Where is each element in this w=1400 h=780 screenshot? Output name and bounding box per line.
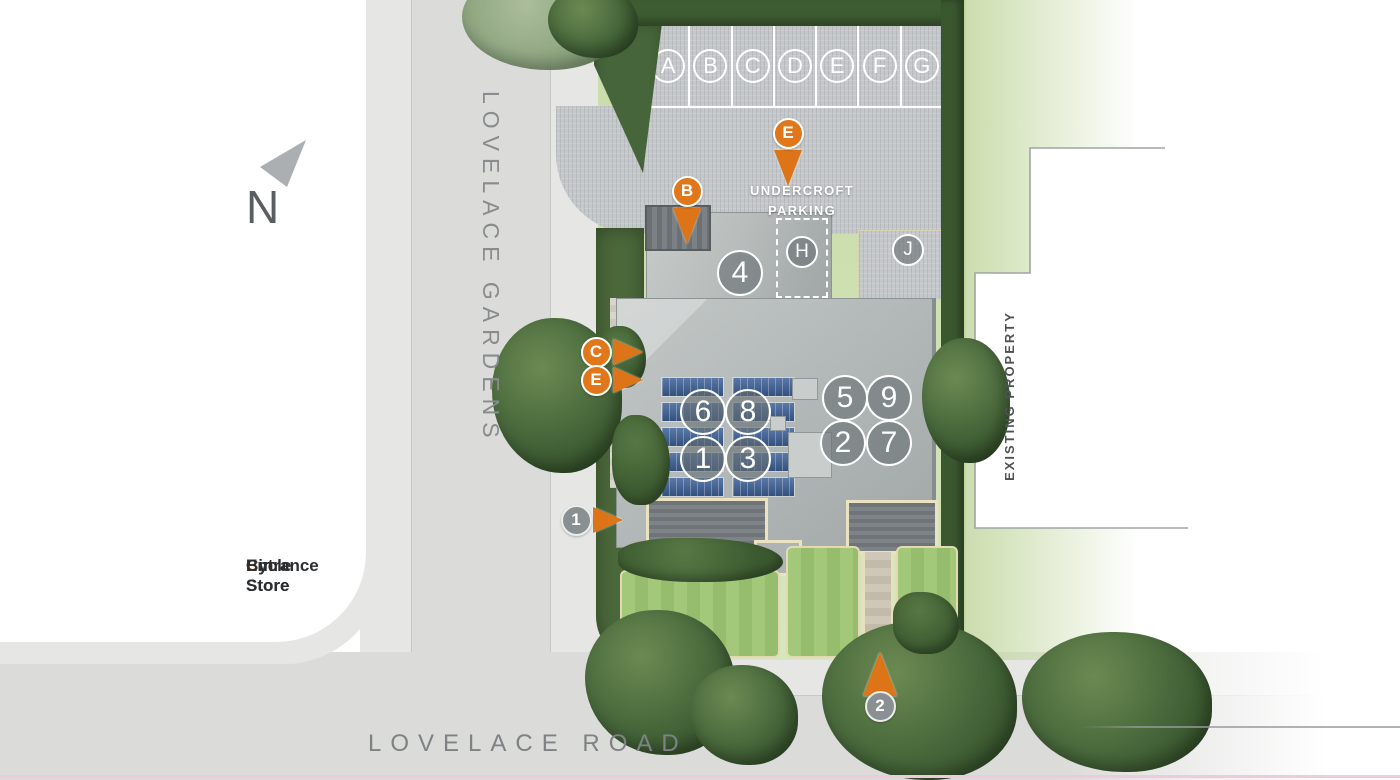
boundary-line	[1080, 726, 1400, 728]
marker-label: B	[681, 181, 693, 201]
unit-circle: 4	[717, 250, 763, 296]
unit-circle-label: 8	[740, 395, 757, 429]
undercroft-parking-label: UNDERCROFT PARKING	[736, 181, 868, 220]
marker-label: 2	[875, 696, 884, 716]
plan-annotations: 4HJ68135927EBCE12	[0, 0, 1400, 780]
unit-circle: 3	[725, 436, 771, 482]
unit-circle-label: 4	[732, 256, 749, 290]
marker-circle: B	[672, 176, 703, 207]
marker-label: C	[590, 342, 602, 362]
unit-circle-label: 5	[837, 381, 854, 415]
unit-circle-label: 7	[881, 426, 898, 460]
marker-circle: 2	[865, 691, 896, 722]
marker-pointer-icon	[593, 507, 623, 533]
marker-pointer-icon	[673, 208, 701, 244]
unit-circle-label: 2	[835, 426, 852, 460]
unit-circle: J	[892, 234, 924, 266]
north-label: N	[246, 180, 279, 234]
road-label-lovelace-road: LOVELACE ROAD	[368, 730, 688, 758]
unit-circle: 1	[680, 436, 726, 482]
unit-circle: 6	[680, 389, 726, 435]
unit-circle: 7	[866, 420, 912, 466]
unit-circle-label: 9	[881, 381, 898, 415]
marker-pointer-icon	[613, 339, 643, 365]
unit-circle-label: 6	[695, 395, 712, 429]
existing-property-label: EXISTING PROPERTY	[1002, 311, 1022, 481]
marker-pointer-icon	[613, 367, 643, 393]
marker-label: E	[782, 123, 793, 143]
unit-circle: H	[786, 236, 818, 268]
undercroft-label-line1: UNDERCROFT	[736, 181, 868, 201]
marker-pointer-icon	[863, 652, 897, 696]
unit-circle: 9	[866, 375, 912, 421]
unit-circle-label: H	[795, 241, 809, 263]
undercroft-label-line2: PARKING	[736, 201, 868, 221]
unit-circle: 2	[820, 420, 866, 466]
marker-circle: C	[581, 337, 612, 368]
marker-circle: E	[773, 118, 804, 149]
legend-label: Cycle Store	[246, 556, 291, 596]
marker-circle: 1	[561, 505, 592, 536]
unit-circle-label: J	[903, 239, 913, 261]
marker-label: E	[590, 370, 601, 390]
marker-circle: E	[581, 365, 612, 396]
unit-circle-label: 1	[695, 442, 712, 476]
marker-label: 1	[571, 510, 580, 530]
site-plan: ABCDEFG 4HJ68135927EBCE12 UNDERCROFT PAR…	[0, 0, 1400, 780]
unit-circle: 8	[725, 389, 771, 435]
unit-circle: 5	[822, 375, 868, 421]
road-label-lovelace-gardens: LOVELACE GARDENS	[474, 91, 504, 421]
plan-edge-line	[0, 775, 1400, 778]
unit-circle-label: 3	[740, 442, 757, 476]
